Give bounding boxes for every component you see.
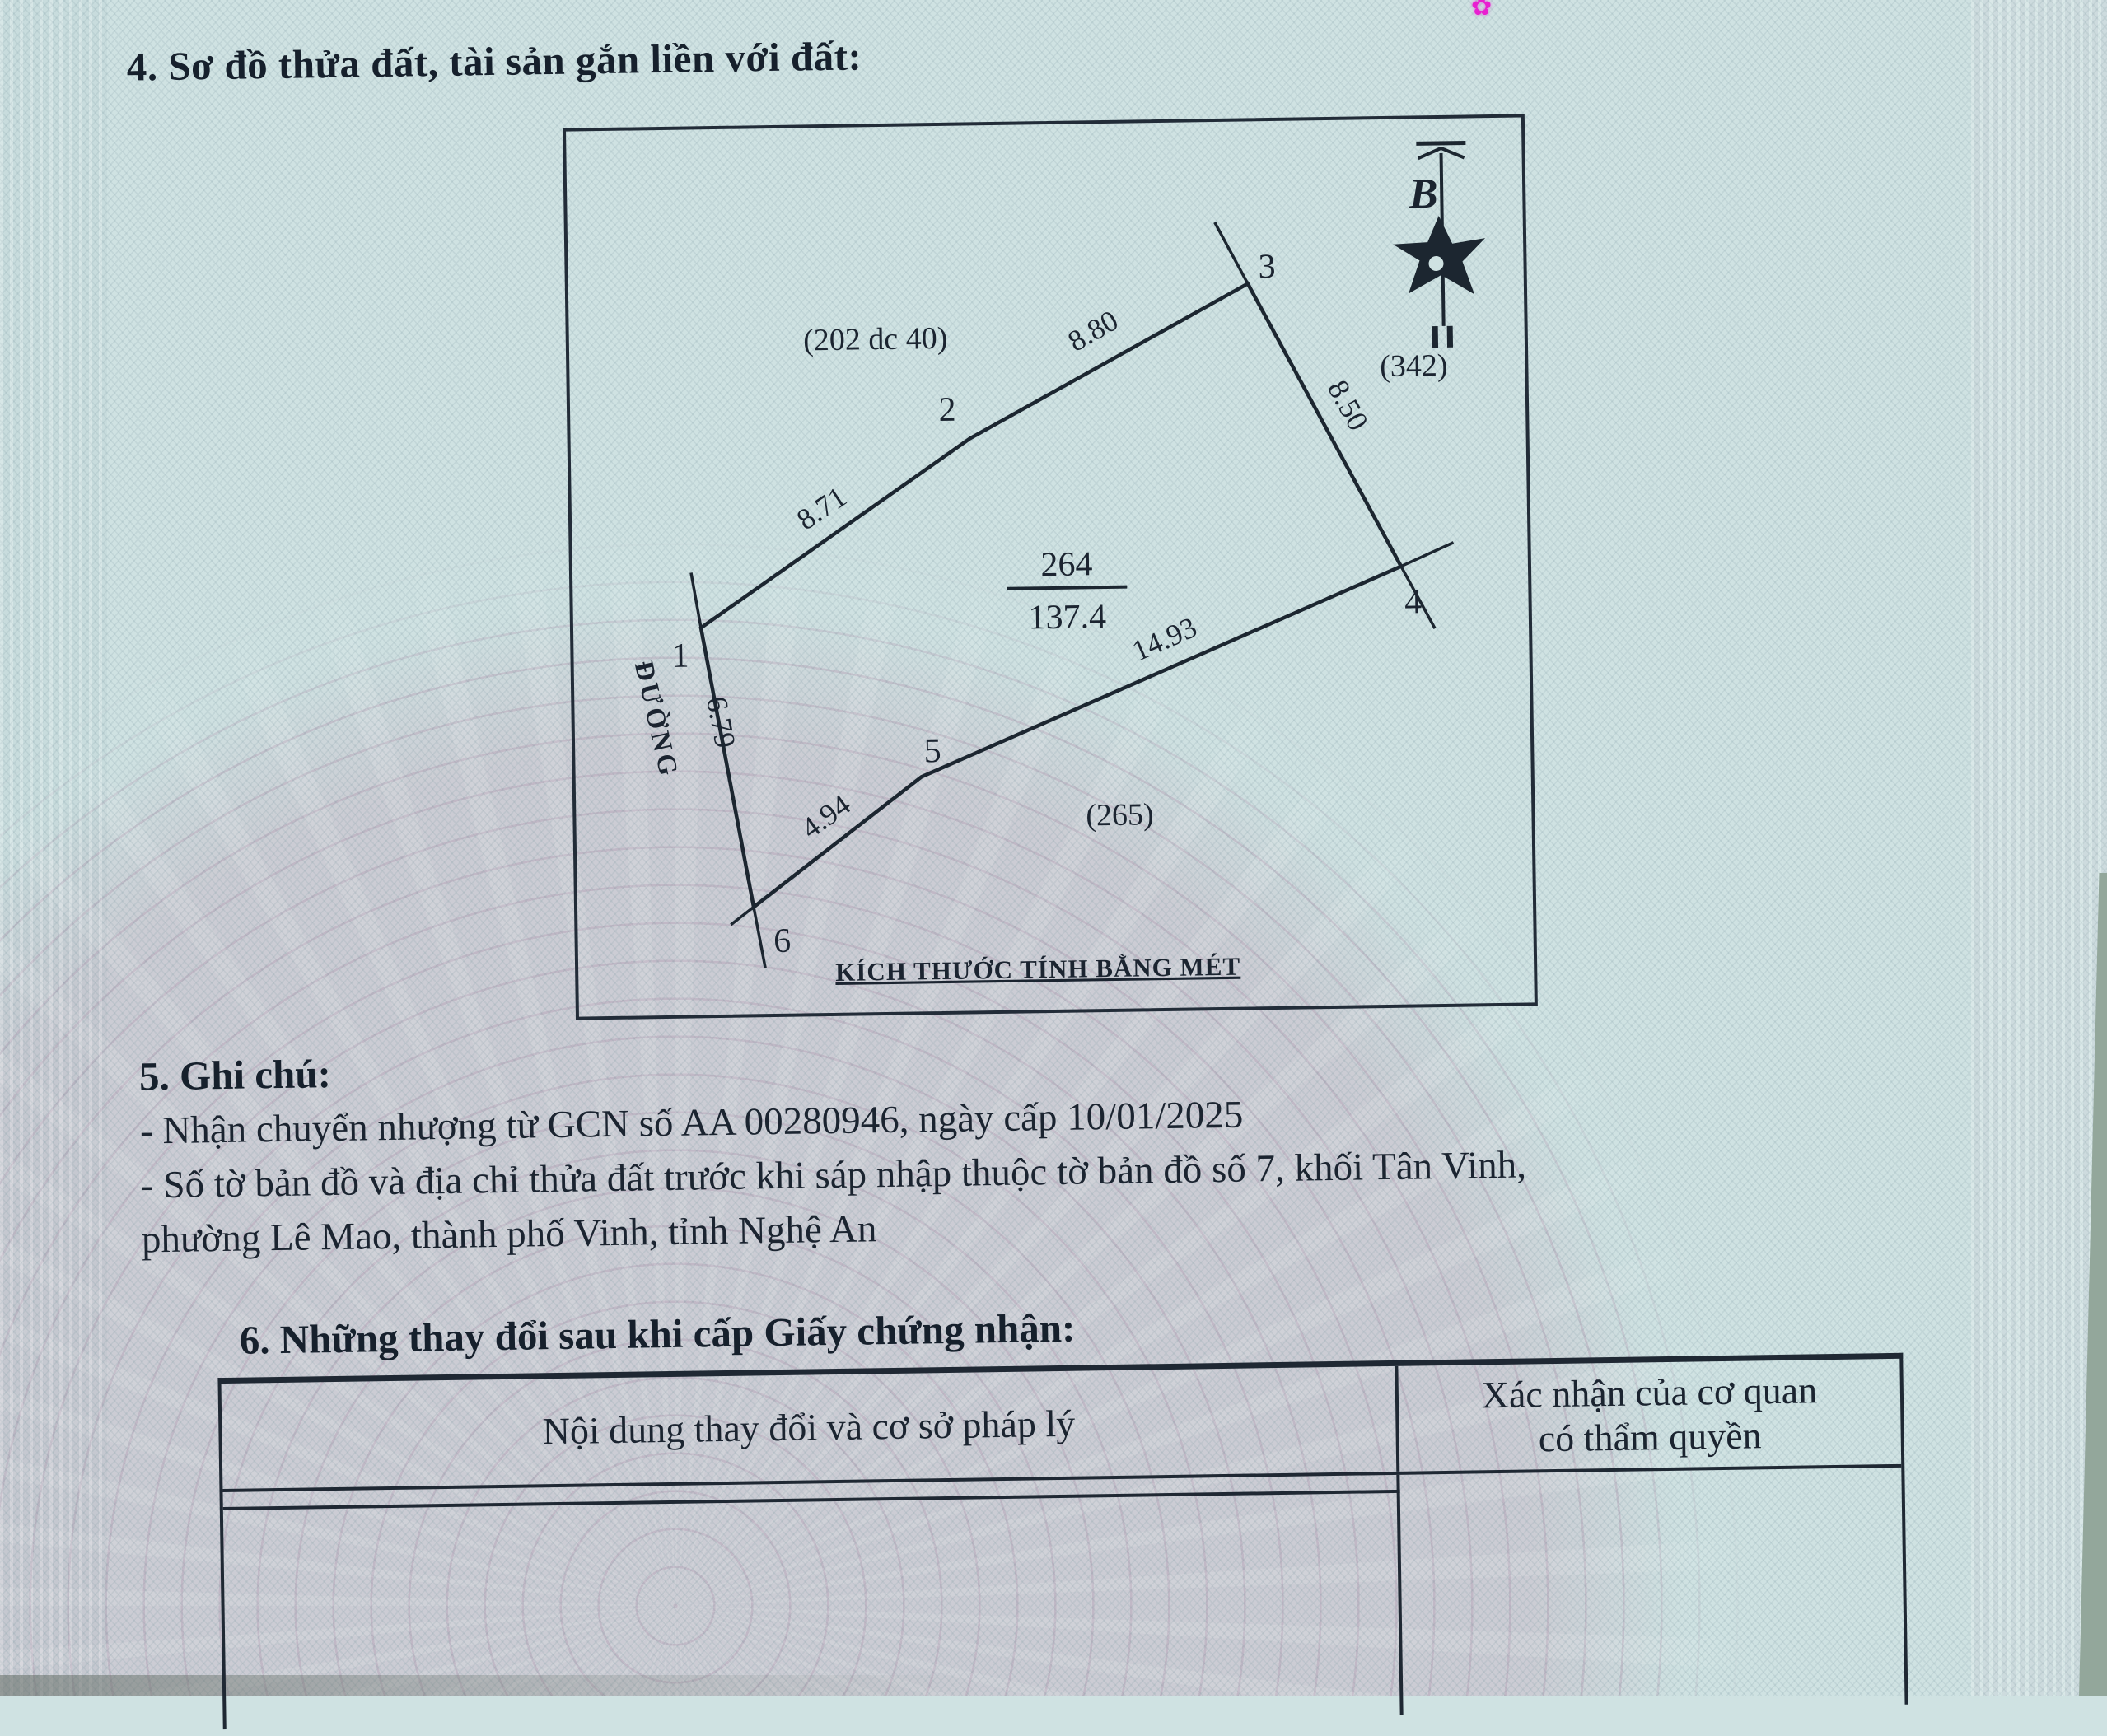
changes-table-col2-header-cell: Xác nhận của cơ quan có thẩm quyền bbox=[1398, 1359, 1901, 1472]
diagram-footer-note: KÍCH THƯỚC TÍNH BẰNG MÉT bbox=[835, 951, 1240, 987]
section5-notes: 5. Ghi chú: - Nhận chuyển nhượng từ GCN … bbox=[139, 1022, 2004, 1267]
parcel-number: 264 bbox=[1040, 545, 1093, 584]
section4-title: 4. Sơ đồ thửa đất, tài sản gắn liền với … bbox=[126, 32, 862, 90]
vertex-label-3: 3 bbox=[1258, 248, 1276, 286]
vertex-label-2: 2 bbox=[938, 391, 956, 429]
parcel-diagram-box: 1 2 3 4 5 6 8.71 8.80 8.50 14.93 4.94 6.… bbox=[563, 114, 1538, 1020]
changes-table: Nội dung thay đổi và cơ sở pháp lý Xác n… bbox=[217, 1353, 1908, 1729]
col2-header-text-line1: Xác nhận của cơ quan bbox=[1481, 1368, 1817, 1417]
edge-length-2-3: 8.80 bbox=[1063, 304, 1124, 358]
edge-length-6-1: 6.79 bbox=[700, 693, 742, 750]
road-label: ĐƯỜNG bbox=[628, 658, 685, 782]
certificate-sheet: 4. Sơ đồ thửa đất, tài sản gắn liền với … bbox=[0, 0, 2107, 1712]
vertex-label-6: 6 bbox=[773, 922, 792, 960]
adjacent-parcel-202: (202 dc 40) bbox=[803, 321, 948, 358]
changes-table-col1-header-cell: Nội dung thay đổi và cơ sở pháp lý bbox=[222, 1366, 1400, 1489]
vertex-label-5: 5 bbox=[923, 732, 941, 770]
adjacent-parcel-265: (265) bbox=[1086, 797, 1154, 833]
parcel-diagram: 1 2 3 4 5 6 8.71 8.80 8.50 14.93 4.94 6.… bbox=[566, 117, 1535, 1016]
parcel-area: 137.4 bbox=[1028, 598, 1106, 637]
tick-vertex-6 bbox=[731, 907, 765, 968]
empty-cell-confirmation bbox=[1399, 1468, 1904, 1715]
compass-star bbox=[1393, 215, 1486, 296]
adjacent-parcel-342: (342) bbox=[1380, 348, 1448, 384]
tick-vertex-3 bbox=[1215, 222, 1248, 284]
north-letter: B bbox=[1409, 170, 1439, 218]
fraction-bar bbox=[1007, 587, 1127, 589]
changes-table-empty-row bbox=[222, 1468, 1904, 1733]
vertex-label-4: 4 bbox=[1404, 583, 1423, 621]
section6-title: 6. Những thay đổi sau khi cấp Giấy chứng… bbox=[239, 1304, 1075, 1364]
vertex-label-1: 1 bbox=[671, 637, 689, 675]
col2-header-text-line2: có thẩm quyền bbox=[1538, 1413, 1762, 1461]
north-arrow-icon: B bbox=[1391, 142, 1487, 348]
edge-length-3-4: 8.50 bbox=[1321, 375, 1375, 436]
col1-header-text: Nội dung thay đổi và cơ sở pháp lý bbox=[542, 1402, 1075, 1454]
tick-vertex-1 bbox=[691, 572, 701, 628]
land-certificate-page: { "document": { "section4_title": "4. Sơ… bbox=[0, 0, 2107, 1696]
empty-cell-content bbox=[222, 1475, 1403, 1733]
